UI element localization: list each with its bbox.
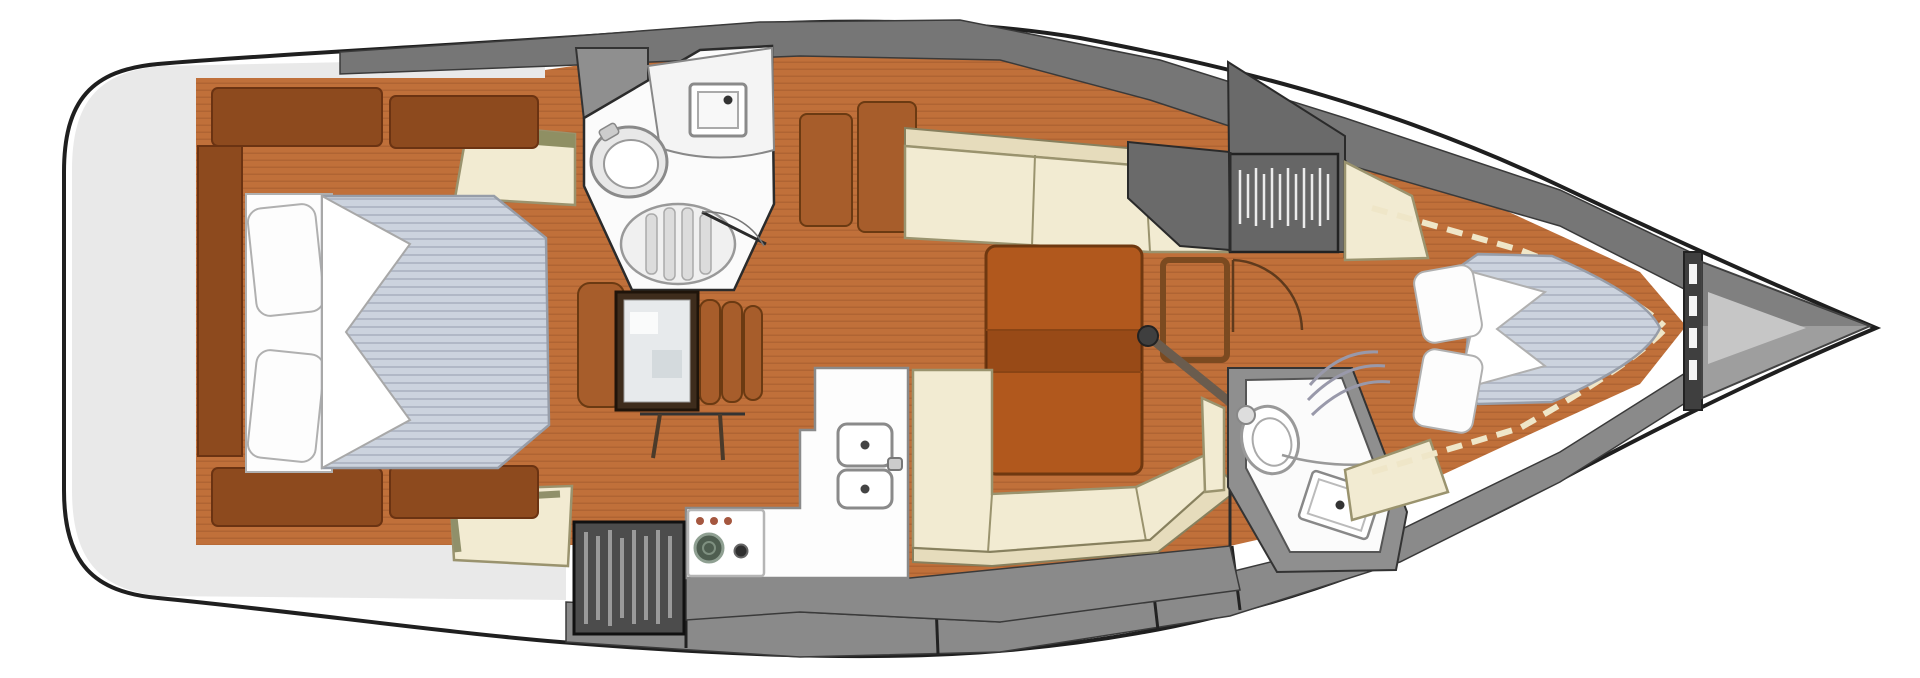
pillow: [1412, 347, 1485, 434]
bulkhead-vent: [1689, 264, 1697, 284]
deck-plan-svg: [0, 0, 1920, 678]
pillow: [247, 203, 326, 318]
burner-large: [695, 534, 723, 562]
faucet-icon: [724, 96, 733, 105]
washbasin-bowl: [698, 92, 738, 128]
chart-detail: [652, 350, 682, 378]
saloon-table: [986, 246, 1142, 474]
pillow: [1412, 263, 1484, 344]
toilet-bowl: [604, 140, 658, 188]
aft-cabin-locker: [212, 88, 382, 146]
companionway-steps: [574, 522, 684, 634]
aft-cabin-locker: [390, 466, 538, 518]
saloon-cabinet: [800, 114, 852, 226]
table-leaf: [986, 330, 1142, 372]
aft-double-berth: [246, 194, 549, 472]
aft-cabin-locker: [212, 468, 382, 526]
settee-end-shelf: [1202, 398, 1224, 492]
stove-knob: [696, 517, 704, 525]
burner-small: [735, 545, 748, 558]
stove-knob: [724, 517, 732, 525]
toilet-hinge: [1237, 406, 1255, 424]
shower-grate: [621, 204, 735, 284]
boat-floor-plan: [0, 0, 1920, 678]
faucet-icon: [888, 458, 902, 470]
rail-knob: [1138, 326, 1158, 346]
pillow: [247, 349, 326, 464]
aft-cabin-locker: [390, 96, 538, 148]
bulkhead-vent: [1689, 296, 1697, 316]
stove-knob: [710, 517, 718, 525]
bow: [1684, 252, 1870, 410]
nav-seat: [700, 300, 762, 404]
bulkhead-vent: [1689, 360, 1697, 380]
drain-icon: [861, 441, 870, 450]
chart-detail: [630, 312, 658, 334]
aft-cabin-headboard: [198, 146, 242, 456]
drain-icon: [861, 485, 870, 494]
stove: [688, 510, 764, 576]
hanging-wardrobe: [1230, 154, 1338, 252]
bulkhead-vent: [1689, 328, 1697, 348]
